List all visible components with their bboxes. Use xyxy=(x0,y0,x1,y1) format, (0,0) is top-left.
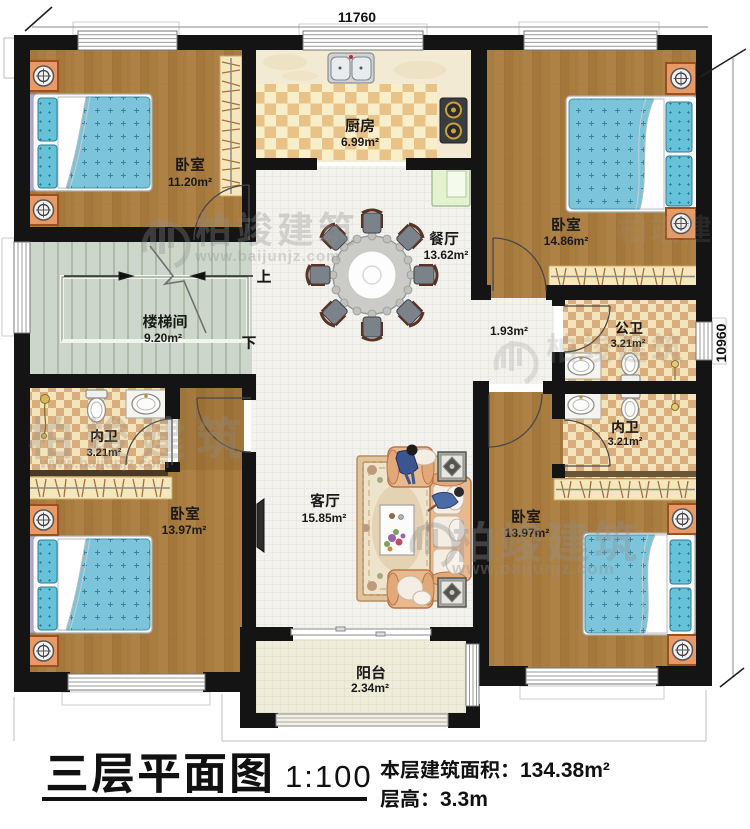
svg-text:11.20m²: 11.20m² xyxy=(168,175,212,189)
svg-text:9.20m²: 9.20m² xyxy=(144,331,182,345)
svg-text:11760: 11760 xyxy=(338,9,376,25)
svg-text:15.85m²: 15.85m² xyxy=(302,511,347,525)
svg-text:13.97m²: 13.97m² xyxy=(162,523,207,537)
svg-text:www.baijunjz.com: www.baijunjz.com xyxy=(451,559,615,578)
svg-text:1.93m²: 1.93m² xyxy=(490,324,528,338)
svg-text:13.62m²: 13.62m² xyxy=(424,248,469,262)
svg-text:3.21m²: 3.21m² xyxy=(608,436,643,448)
svg-text:10960: 10960 xyxy=(713,323,729,362)
svg-text:www.baijunjz.com: www.baijunjz.com xyxy=(39,455,169,472)
svg-text:14.86m²: 14.86m² xyxy=(544,234,589,248)
svg-text:2.34m²: 2.34m² xyxy=(351,681,389,695)
svg-text:3.3m: 3.3m xyxy=(440,788,488,811)
svg-text:1:100: 1:100 xyxy=(285,759,373,794)
svg-text:6.99m²: 6.99m² xyxy=(341,135,379,149)
svg-text:134.38m²: 134.38m² xyxy=(520,759,610,782)
svg-text:www.baijunjz.com: www.baijunjz.com xyxy=(194,248,340,265)
